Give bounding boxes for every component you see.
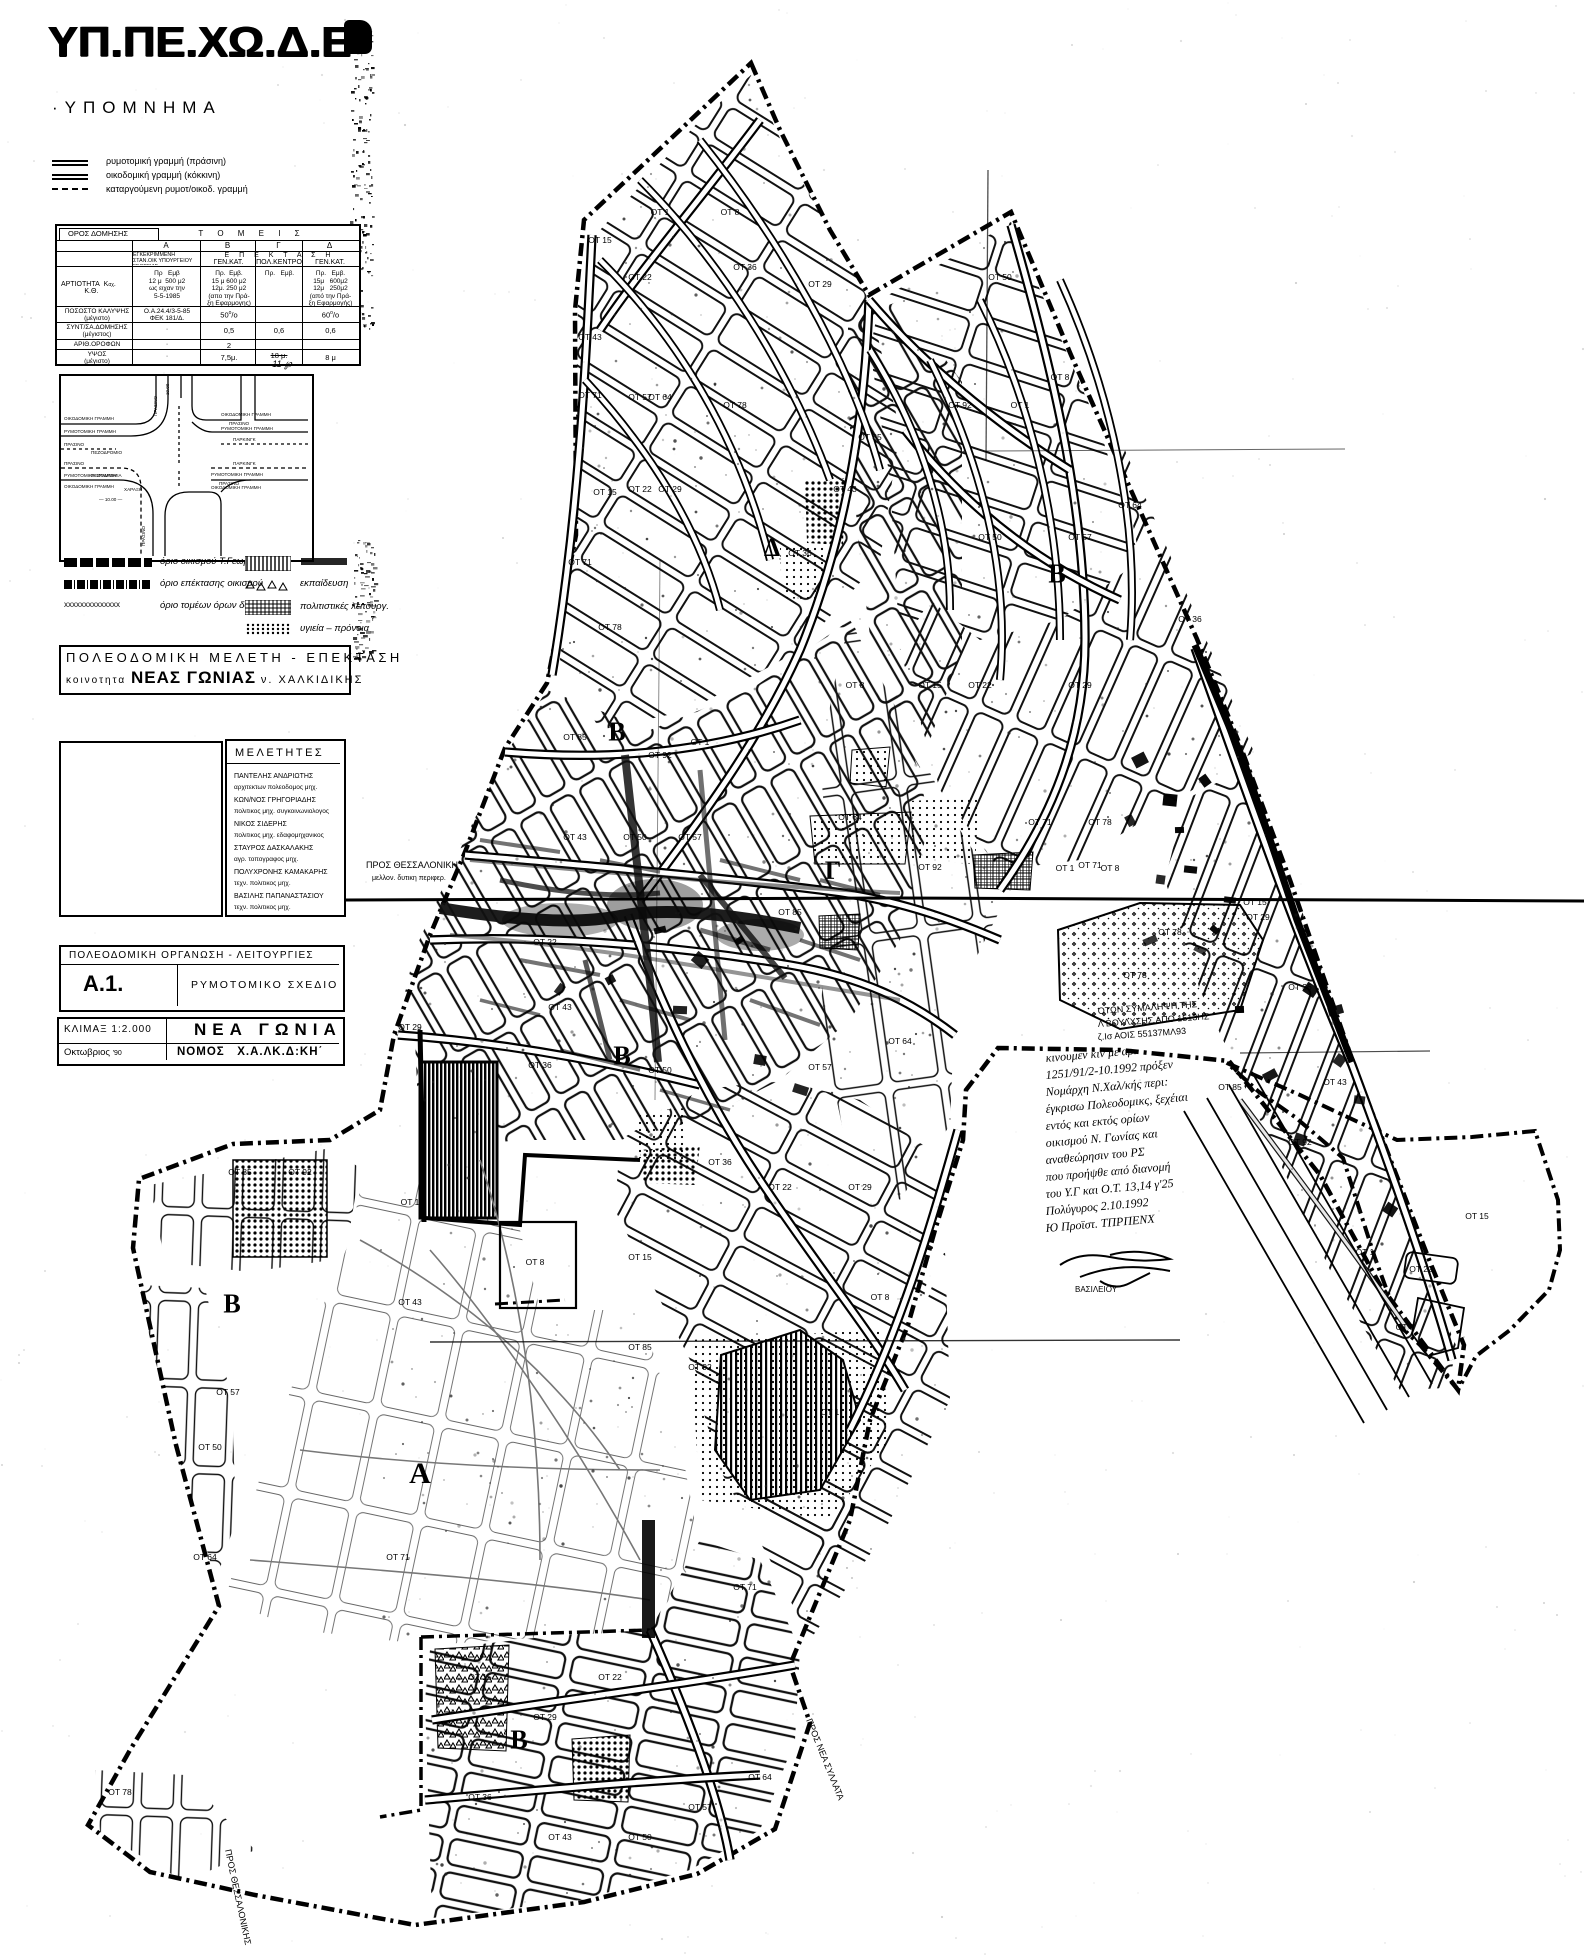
svg-text:OT 57: OT 57 — [808, 1062, 832, 1072]
svg-text:OT 1: OT 1 — [651, 207, 670, 217]
svg-text:OT 85: OT 85 — [778, 907, 802, 917]
svg-text:OT 78: OT 78 — [723, 400, 747, 410]
svg-text:ΠΑΡΚΙΝΓΚ: ΠΑΡΚΙΝΓΚ — [233, 461, 257, 466]
svg-text:ΡΥΜΟΤΟΜΙΚΗ ΓΡΑΜΜΗ: ΡΥΜΟΤΟΜΙΚΗ ΓΡΑΜΜΗ — [64, 429, 116, 434]
svg-text:OT 29: OT 29 — [658, 484, 682, 494]
svg-text:ΟΙΚΟΔΟΜΙΚΗ ΓΡΑΜΜΗ: ΟΙΚΟΔΟΜΙΚΗ ΓΡΑΜΜΗ — [64, 484, 114, 489]
svg-text:μελλον. δυτικη περιφερ.: μελλον. δυτικη περιφερ. — [372, 875, 446, 882]
svg-text:ΠΑΡΚΙΝΓΚ: ΠΑΡΚΙΝΓΚ — [233, 437, 257, 442]
svg-text:OT 22: OT 22 — [628, 272, 652, 282]
svg-text:OT 92: OT 92 — [948, 400, 972, 410]
svg-text:Β: Β — [223, 1289, 240, 1318]
svg-text:OT 57: OT 57 — [216, 1387, 240, 1397]
svg-text:OT 64: OT 64 — [648, 392, 672, 402]
svg-text:OT 64: OT 64 — [888, 1036, 912, 1046]
svg-text:ΠΡΟΣ ΘΕΣΣΑΛΟΝΙΚΗΣ: ΠΡΟΣ ΘΕΣΣΑΛΟΝΙΚΗΣ — [223, 1848, 253, 1946]
svg-text:OT 92: OT 92 — [648, 750, 672, 760]
svg-text:OT 29: OT 29 — [808, 279, 832, 289]
svg-text:OT 71: OT 71 — [578, 390, 602, 400]
svg-text:Β: Β — [613, 1041, 630, 1070]
svg-text:OT 29: OT 29 — [1246, 912, 1270, 922]
svg-text:Β: Β — [1048, 559, 1065, 588]
svg-text:OT 1: OT 1 — [1011, 400, 1030, 410]
svg-text:OT 71: OT 71 — [386, 1552, 410, 1562]
svg-text:OT 85: OT 85 — [1218, 1082, 1242, 1092]
svg-text:OT 43: OT 43 — [578, 332, 602, 342]
svg-text:ΟΙΚΟΔΟΜΙΚΗ ΓΡΑΜΜΗ: ΟΙΚΟΔΟΜΙΚΗ ΓΡΑΜΜΗ — [221, 412, 271, 417]
svg-text:OT 85: OT 85 — [858, 432, 882, 442]
svg-text:OT 43: OT 43 — [563, 832, 587, 842]
svg-text:OT 78: OT 78 — [598, 622, 622, 632]
svg-text:ΒΑΣΙΛΕΙΟΥ: ΒΑΣΙΛΕΙΟΥ — [1075, 1285, 1118, 1294]
svg-text:OT 57: OT 57 — [678, 832, 702, 842]
svg-text:ΠΡΟΣ ΘΕΣΣΑΛΟΝΙΚΗ: ΠΡΟΣ ΘΕΣΣΑΛΟΝΙΚΗ — [366, 860, 458, 870]
svg-text:OT 43: OT 43 — [833, 484, 857, 494]
svg-text:OT 22: OT 22 — [768, 1182, 792, 1192]
svg-text:OT 22: OT 22 — [1409, 1264, 1433, 1274]
svg-text:ΟΙΚΟΔΟΜΙΚΗ ΓΡΑΜΜΗ: ΟΙΚΟΔΟΜΙΚΗ ΓΡΑΜΜΗ — [211, 485, 261, 490]
svg-text:OT 8: OT 8 — [1396, 1322, 1415, 1332]
svg-text:OT 15: OT 15 — [468, 1672, 492, 1682]
svg-text:OT 36: OT 36 — [1288, 982, 1312, 992]
svg-text:OT 8: OT 8 — [846, 680, 865, 690]
svg-text:OT 1: OT 1 — [1056, 863, 1075, 873]
svg-text:OT 64: OT 64 — [748, 1772, 772, 1782]
svg-text:OT 78: OT 78 — [1088, 817, 1112, 827]
svg-text:OT 57: OT 57 — [1068, 532, 1092, 542]
svg-text:OT 43: OT 43 — [548, 1832, 572, 1842]
svg-text:OT 29: OT 29 — [398, 1022, 422, 1032]
svg-text:OT 50: OT 50 — [198, 1442, 222, 1452]
svg-text:OT 78: OT 78 — [108, 1787, 132, 1797]
svg-text:ΡΥΜΟΤΟΜΙΚΗ ΓΡΑΜΜΗ: ΡΥΜΟΤΟΜΙΚΗ ΓΡΑΜΜΗ — [221, 426, 273, 431]
svg-text:OT 57: OT 57 — [688, 1802, 712, 1812]
svg-text:Γ: Γ — [825, 856, 842, 885]
svg-text:OT 78: OT 78 — [1123, 970, 1147, 980]
svg-text:OT 22: OT 22 — [628, 484, 652, 494]
svg-text:OT 8: OT 8 — [526, 1257, 545, 1267]
svg-text:OT 15: OT 15 — [1243, 897, 1267, 907]
svg-text:OT 8: OT 8 — [721, 207, 740, 217]
svg-text:OT 8: OT 8 — [1051, 372, 1070, 382]
svg-text:OT 78: OT 78 — [1158, 927, 1182, 937]
svg-text:OT 36: OT 36 — [733, 262, 757, 272]
svg-text:OT 1: OT 1 — [401, 1197, 420, 1207]
svg-text:OT 50: OT 50 — [978, 532, 1002, 542]
svg-text:OT 85: OT 85 — [228, 1167, 252, 1177]
svg-text:OT 64: OT 64 — [838, 812, 862, 822]
svg-text:ΠΡΑΣΙΝΟ: ΠΡΑΣΙΝΟ — [64, 461, 85, 466]
svg-text:OT 50: OT 50 — [623, 832, 647, 842]
svg-text:OT 1: OT 1 — [1356, 1247, 1375, 1257]
svg-text:OT 43: OT 43 — [1323, 1077, 1347, 1087]
svg-text:OT 92: OT 92 — [1288, 1137, 1312, 1147]
svg-text:OT 64: OT 64 — [193, 1552, 217, 1562]
svg-text:OT 92: OT 92 — [288, 1167, 312, 1177]
svg-text:OT 43: OT 43 — [398, 1297, 422, 1307]
svg-text:OT 43: OT 43 — [548, 1002, 572, 1012]
svg-text:OT 85: OT 85 — [628, 1342, 652, 1352]
svg-text:OT 71: OT 71 — [1028, 817, 1052, 827]
svg-text:OT 1: OT 1 — [821, 1407, 840, 1417]
svg-text:OT 1: OT 1 — [691, 737, 710, 747]
svg-text:OT 36: OT 36 — [528, 1060, 552, 1070]
svg-text:OT 92: OT 92 — [918, 862, 942, 872]
svg-text:— 10.00 —: — 10.00 — — [99, 497, 123, 502]
svg-text:OT 71: OT 71 — [1078, 860, 1102, 870]
svg-text:OT 50: OT 50 — [988, 272, 1012, 282]
svg-text:ΟΙΚΟΔΟΜΙΚΗ ΓΡΑΜΜΗ: ΟΙΚΟΔΟΜΙΚΗ ΓΡΑΜΜΗ — [64, 416, 114, 421]
svg-text:OT 15: OT 15 — [918, 680, 942, 690]
svg-text:OT 36: OT 36 — [468, 1792, 492, 1802]
svg-text:ζ.Ισ ΑΟΙΣ 55137ΜΛ93: ζ.Ισ ΑΟΙΣ 55137ΜΛ93 — [1097, 1026, 1186, 1042]
svg-text:OT 50: OT 50 — [628, 1832, 652, 1842]
svg-text:OT 22: OT 22 — [598, 1672, 622, 1682]
svg-text:Δ: Δ — [764, 533, 780, 562]
svg-text:ΠΡΑΣΙΝΟ: ΠΡΑΣΙΝΟ — [64, 442, 85, 447]
svg-text:OT 29: OT 29 — [848, 1182, 872, 1192]
svg-text:— 10.00: — 10.00 — [165, 383, 170, 401]
svg-text:Β: Β — [510, 1725, 527, 1754]
svg-text:ΠΡΟΣ ΝΕΑ ΣΥΛΛΑΤΑ: ΠΡΟΣ ΝΕΑ ΣΥΛΛΑΤΑ — [804, 1717, 846, 1802]
svg-text:OT 36: OT 36 — [788, 548, 812, 558]
svg-text:OT 8: OT 8 — [1101, 863, 1120, 873]
svg-text:OT 36: OT 36 — [708, 1157, 732, 1167]
svg-text:ΠΡΑΣΙΝΟ: ΠΡΑΣΙΝΟ — [141, 525, 146, 546]
svg-text:Α: Α — [409, 1457, 431, 1490]
svg-text:OT 15: OT 15 — [628, 1252, 652, 1262]
svg-text:ΠΡΑΣΙΝΟ: ΠΡΑΣΙΝΟ — [153, 395, 158, 416]
svg-text:OT 29: OT 29 — [1068, 680, 1092, 690]
svg-text:ΡΥΜΟΤΟΜΙΚΗ ΓΡΑΜΜΗ: ΡΥΜΟΤΟΜΙΚΗ ΓΡΑΜΜΗ — [211, 472, 263, 477]
svg-text:OT 71: OT 71 — [568, 557, 592, 567]
svg-text:OT 29: OT 29 — [533, 1712, 557, 1722]
svg-text:OT 22: OT 22 — [533, 937, 557, 947]
svg-text:OT 15: OT 15 — [588, 235, 612, 245]
svg-text:OT 92: OT 92 — [688, 1362, 712, 1372]
svg-text:Β: Β — [608, 717, 625, 746]
svg-text:OT 36: OT 36 — [1178, 614, 1202, 624]
svg-text:OT 64: OT 64 — [1118, 500, 1142, 510]
svg-text:OT 22: OT 22 — [968, 680, 992, 690]
svg-text:OT 15: OT 15 — [1465, 1211, 1489, 1221]
svg-text:OT 50: OT 50 — [648, 1065, 672, 1075]
svg-text:OT 8: OT 8 — [871, 1292, 890, 1302]
svg-text:OT 15: OT 15 — [593, 487, 617, 497]
svg-text:OT 85: OT 85 — [563, 732, 587, 742]
svg-text:ΧΑΡΑΞΗ: ΧΑΡΑΞΗ — [124, 487, 142, 492]
svg-text:ΡΥΜΟΤΟΜΙΚΗ ΓΡΑΜΜΗ: ΡΥΜΟΤΟΜΙΚΗ ΓΡΑΜΜΗ — [64, 473, 116, 478]
svg-text:OT 71: OT 71 — [733, 1582, 757, 1592]
svg-text:ΠΕΖΟΔΡΟΜΙΟ: ΠΕΖΟΔΡΟΜΙΟ — [91, 450, 122, 455]
